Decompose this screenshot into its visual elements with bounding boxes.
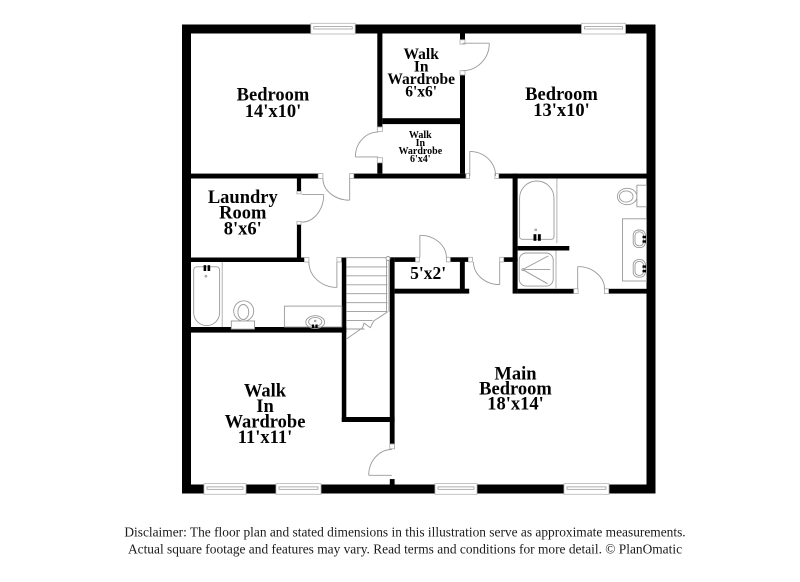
svg-text:Actual square footage and feat: Actual square footage and features may v… [128,542,682,557]
svg-text:6'x6': 6'x6' [405,84,437,101]
svg-text:5'x2': 5'x2' [410,263,446,283]
svg-text:Disclaimer: The floor plan and: Disclaimer: The floor plan and stated di… [124,525,685,540]
svg-text:18'x14': 18'x14' [487,395,544,415]
svg-text:6'x4': 6'x4' [410,154,431,165]
svg-text:8'x6': 8'x6' [224,220,262,240]
svg-text:14'x10': 14'x10' [245,102,302,122]
svg-text:13'x10': 13'x10' [533,101,590,121]
svg-text:11'x11': 11'x11' [238,428,293,448]
